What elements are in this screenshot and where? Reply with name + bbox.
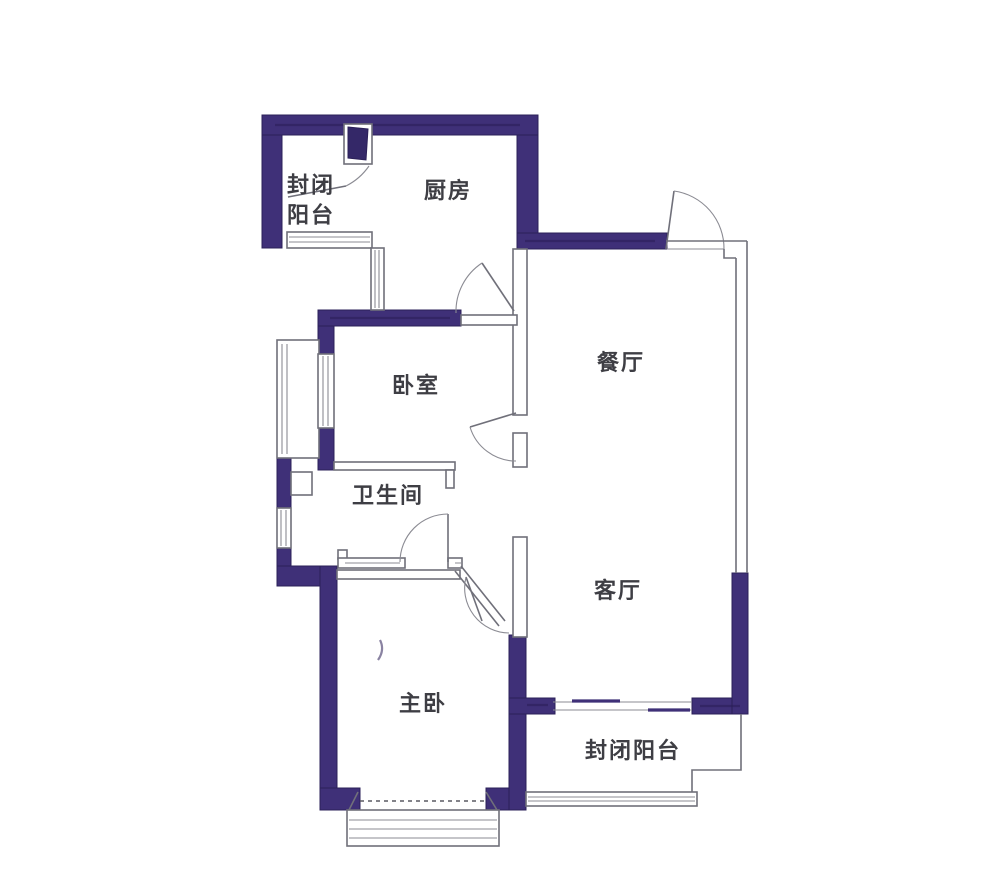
window-balcony-top [287, 232, 372, 248]
room-label-living: 客厅 [594, 577, 642, 607]
door-bedroom-arc [470, 427, 516, 461]
door-bedroom-leaf [470, 413, 516, 427]
room-label-bathroom: 卫生间 [352, 482, 424, 512]
room-label-kitchen: 厨房 [424, 177, 472, 207]
wall-master-right [509, 635, 526, 810]
window-west-wall [277, 508, 291, 548]
room-label-balcony-bottom: 封闭阳台 [585, 737, 681, 767]
wall-bedroom-left-upper [318, 326, 334, 354]
shaft-box [291, 472, 312, 495]
room-label-dining: 餐厅 [597, 349, 645, 379]
partition-bathroom-east-stub [446, 470, 454, 488]
partition-bedroom-bottom [334, 462, 455, 470]
room-label-master-bedroom: 主卧 [399, 690, 447, 720]
door-bathroom-arc [400, 514, 448, 562]
wall-streak [378, 640, 382, 660]
room-label-line: 封闭 [287, 171, 335, 201]
door-kitchen-leaf [482, 263, 514, 311]
room-label-balcony-top: 封闭 阳台 [287, 171, 335, 230]
bay-window-master-box [347, 810, 499, 846]
partition-dining-west-upper [513, 249, 527, 415]
wall-east-lower [732, 573, 748, 714]
door-kitchen-sill [461, 315, 517, 325]
wall-kitchen-right [517, 135, 538, 239]
partition-dining-west-stub [513, 433, 527, 467]
room-label-line: 阳台 [287, 201, 335, 231]
wall-bedroom-left-lower [318, 426, 334, 470]
room-label-bedroom: 卧室 [392, 372, 440, 402]
partition-dining-west-lower [513, 537, 527, 637]
partition-master-top [337, 570, 460, 579]
window-balcony-bottom [526, 792, 697, 806]
outline-balcony-step [692, 714, 741, 792]
doors-layer [288, 124, 724, 710]
wall-west-upper [277, 458, 291, 508]
floorplan-image: 封闭 阳台 厨房 餐厅 卧室 卫生间 客厅 主卧 封闭阳台 [0, 0, 1000, 891]
door-master-leaf [466, 577, 482, 621]
bay-window-bedroom-box [277, 340, 319, 458]
window-kitchen-left [371, 248, 384, 310]
window-bedroom-left [318, 354, 334, 428]
wall-master-left [320, 566, 337, 808]
door-balcony-kitchen-arc [346, 166, 369, 186]
door-master-arc [465, 577, 509, 633]
door-kitchen-arc [456, 263, 482, 313]
outline-entry-step [724, 249, 736, 258]
floorplan-drawing [0, 0, 1000, 891]
door-balcony-kitchen-leaf [348, 127, 368, 160]
